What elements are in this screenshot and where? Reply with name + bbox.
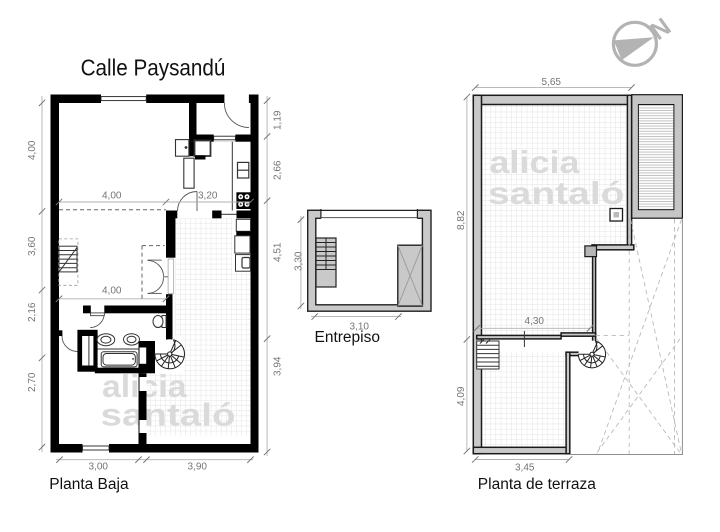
svg-text:santaló: santaló [101,397,236,433]
svg-text:3,94: 3,94 [273,356,284,376]
svg-text:5,65: 5,65 [542,77,562,88]
svg-text:3,00: 3,00 [89,461,109,472]
svg-text:3,20: 3,20 [198,191,218,202]
svg-text:Calle Paysandú: Calle Paysandú [81,54,226,80]
svg-text:4,00: 4,00 [27,140,38,160]
svg-text:3,60: 3,60 [27,236,38,256]
svg-text:4,09: 4,09 [456,386,467,406]
svg-text:1,19: 1,19 [273,110,284,130]
svg-text:4,30: 4,30 [525,316,545,327]
svg-text:2,70: 2,70 [27,372,38,392]
svg-text:4,00: 4,00 [102,285,122,296]
svg-text:3,90: 3,90 [188,461,208,472]
svg-text:3,45: 3,45 [515,463,535,474]
svg-text:4,00: 4,00 [102,191,122,202]
svg-text:4,51: 4,51 [273,242,284,262]
svg-text:Entrepiso: Entrepiso [315,329,380,346]
svg-text:2,16: 2,16 [27,302,38,322]
svg-text:8,82: 8,82 [456,210,467,230]
svg-text:2,66: 2,66 [273,160,284,180]
svg-text:Planta de terraza: Planta de terraza [478,476,596,493]
svg-text:santaló: santaló [488,175,625,211]
svg-text:3,30: 3,30 [294,251,305,271]
svg-text:Planta Baja: Planta Baja [49,476,129,493]
